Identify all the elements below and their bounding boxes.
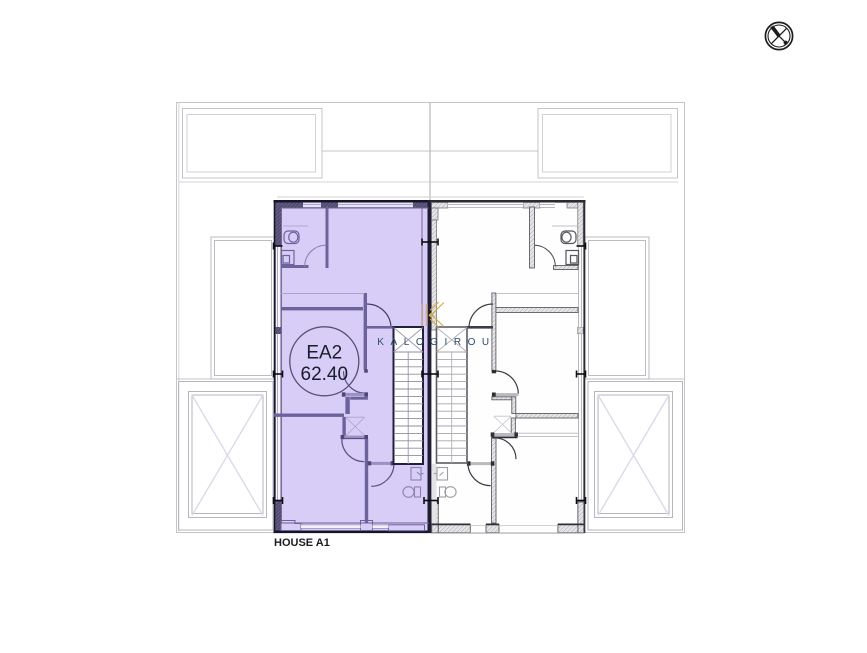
svg-text:62.40: 62.40	[301, 364, 349, 385]
svg-text:EA2: EA2	[306, 343, 342, 364]
svg-text:KALOGIROU: KALOGIROU	[377, 337, 495, 348]
svg-text:HOUSE A1: HOUSE A1	[274, 537, 330, 549]
